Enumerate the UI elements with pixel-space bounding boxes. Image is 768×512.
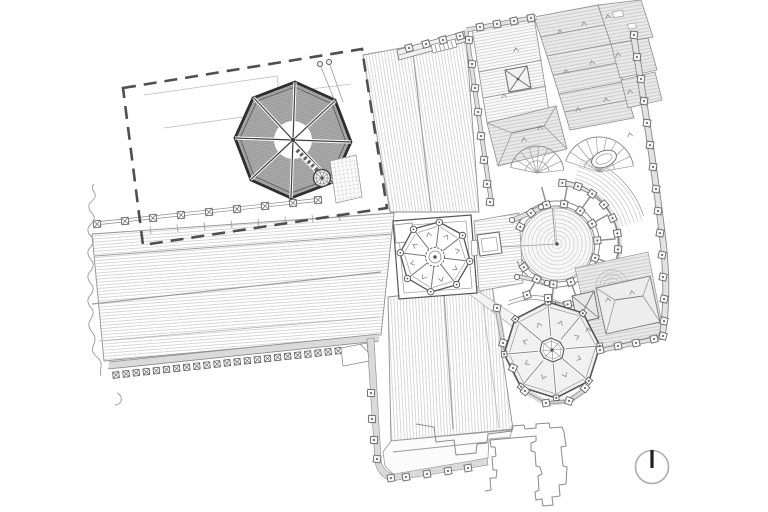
wall-pier-west-dot	[376, 458, 378, 460]
nave-southeast-porch	[341, 343, 369, 366]
wall-pier-wing-west-dot	[477, 111, 479, 113]
wall-pier-southeast-dot	[599, 349, 601, 351]
fan-stair-tread	[537, 153, 556, 173]
wall-pier-east-dot	[663, 298, 665, 300]
wall-pier-east-dot	[646, 122, 648, 124]
flying-buttress	[581, 196, 591, 210]
inner-ring-pier-dot	[536, 278, 538, 280]
wall-pier-apron-dot	[405, 476, 407, 478]
oval-skylight	[589, 147, 619, 172]
wall-pier-gallery-dot	[526, 294, 528, 296]
wall-pier-southeast-dot	[617, 345, 619, 347]
roof-tick	[627, 132, 633, 137]
pinnacle-dot	[514, 318, 516, 320]
flying-buttress	[564, 186, 567, 203]
pinnacle-dot	[413, 229, 415, 231]
wall-pier-chapel-dot	[568, 400, 570, 402]
inner-ring-pier-dot	[519, 226, 521, 228]
inner-ring-pier-dot	[570, 281, 572, 283]
terrace-grid	[330, 155, 362, 203]
wall-pier-apron-dot	[426, 473, 428, 475]
wall-pier-west-dot	[370, 392, 372, 394]
wall-pier-chapel-dot	[502, 342, 504, 344]
wall-pier-wing-north-dot	[479, 26, 481, 28]
wall-pier-east-dot	[633, 34, 635, 36]
wall-pier-east-dot	[663, 320, 665, 322]
outer-ring-pier-dot	[567, 303, 569, 305]
wall-pier-west-dot	[373, 439, 375, 441]
outer-ring-pier-dot	[561, 182, 563, 184]
wall-pier-wing-west-dot	[468, 39, 470, 41]
wall-pier-east-dot	[643, 100, 645, 102]
pinnacle-dot	[520, 386, 522, 388]
wall-pier-chapel-dot	[496, 307, 498, 309]
wall-pier-chapel-dot	[512, 367, 514, 369]
wall-pier-east-dot	[652, 166, 654, 168]
wall-pier-wing-west-dot	[489, 201, 491, 203]
flying-buttress	[599, 239, 616, 240]
inner-ring-pier-dot	[530, 212, 532, 214]
wall-pier-chapel-dot	[524, 390, 526, 392]
ambulatory-arc	[578, 167, 635, 224]
wall-pier-wing-west-dot	[486, 183, 488, 185]
wall-pier-strip-dot	[459, 35, 461, 37]
wall-pier-east-dot	[659, 232, 661, 234]
outer-ring-pier-dot	[577, 185, 579, 187]
pinnacle-dot	[469, 260, 471, 262]
pinnacle-dot	[462, 235, 464, 237]
wall-pier-wing-north-dot	[496, 23, 498, 25]
dormer	[628, 23, 637, 29]
wall-pier-strip-dot	[425, 43, 427, 45]
wall-pier-east-dot	[649, 144, 651, 146]
wall-pier-east-dot	[640, 78, 642, 80]
pinnacle-dot	[438, 221, 440, 223]
roof-plan-drawing	[0, 0, 768, 512]
wall-pier-wing-west-dot	[474, 87, 476, 89]
inner-ring-pier-dot	[523, 266, 525, 268]
wall-pier-apron-dot	[390, 477, 392, 479]
pinnacle-dot	[430, 291, 432, 293]
inner-ring-pier-dot	[563, 203, 565, 205]
wall-pier-wing-west-dot	[483, 159, 485, 161]
roof-plan-canvas	[0, 0, 768, 512]
wall-pier-apron-dot	[467, 467, 469, 469]
wall-pier-wing-west-dot	[471, 63, 473, 65]
wall-pier-strip-dot	[442, 39, 444, 41]
flying-buttress	[593, 215, 608, 224]
wall-pier-southeast-dot	[635, 342, 637, 344]
wall-pier-gallery-dot	[547, 297, 549, 299]
wall-pier-wing-north-dot	[513, 20, 515, 22]
outer-ring-pier-dot	[603, 204, 605, 206]
inner-ring-pier-dot	[552, 283, 554, 285]
inner-ring-pier-dot	[579, 210, 581, 212]
wall-pier-wing-north-dot	[530, 17, 532, 19]
dormer	[613, 10, 624, 18]
chapel-lantern	[540, 338, 564, 362]
x-skylight	[505, 66, 531, 92]
wall-pier-chapel-dot	[584, 387, 586, 389]
pinnacle-dot	[407, 278, 409, 280]
inner-ring-pier-dot	[591, 223, 593, 225]
wall-pier-east-dot	[655, 188, 657, 190]
pinnacle-dot	[582, 312, 584, 314]
wall-pier-east-dot	[662, 335, 664, 337]
outer-ring-pier-dot	[616, 232, 618, 234]
wall-pier-southeast-dot	[653, 338, 655, 340]
pinnacle-dot	[555, 397, 557, 399]
wall-pier-east-dot	[662, 276, 664, 278]
inner-ring-pier-dot	[596, 239, 598, 241]
north-transept-roof	[363, 31, 479, 212]
north-arrow	[636, 450, 669, 484]
wall-pier-chapel-dot	[545, 402, 547, 404]
flying-buttress	[542, 187, 546, 203]
wall-pier-east-dot	[661, 254, 663, 256]
chapter-house-octagon	[235, 59, 362, 203]
pinnacle-dot	[399, 252, 401, 254]
wall-pier-strip-dot	[408, 47, 410, 49]
pinnacle-dot	[588, 380, 590, 382]
outer-ring-pier-dot	[612, 217, 614, 219]
wall-pier-wing-west-dot	[480, 135, 482, 137]
inner-ring-pier-dot	[546, 204, 548, 206]
crossing-lantern	[393, 215, 477, 299]
stair-turret	[314, 170, 331, 187]
wall-pier-east-dot	[657, 210, 659, 212]
fan-stair-tread	[537, 170, 564, 173]
outer-ring-pier-dot	[591, 193, 593, 195]
outer-ring-pier-dot	[617, 248, 619, 250]
inner-ring-pier-dot	[594, 257, 596, 259]
wall-pier-west-dot	[371, 418, 373, 420]
wall-pier-apron-dot	[447, 470, 449, 472]
pinnacle-dot	[456, 284, 458, 286]
pinnacle-dot	[503, 353, 505, 355]
wall-pier-east-dot	[636, 56, 638, 58]
